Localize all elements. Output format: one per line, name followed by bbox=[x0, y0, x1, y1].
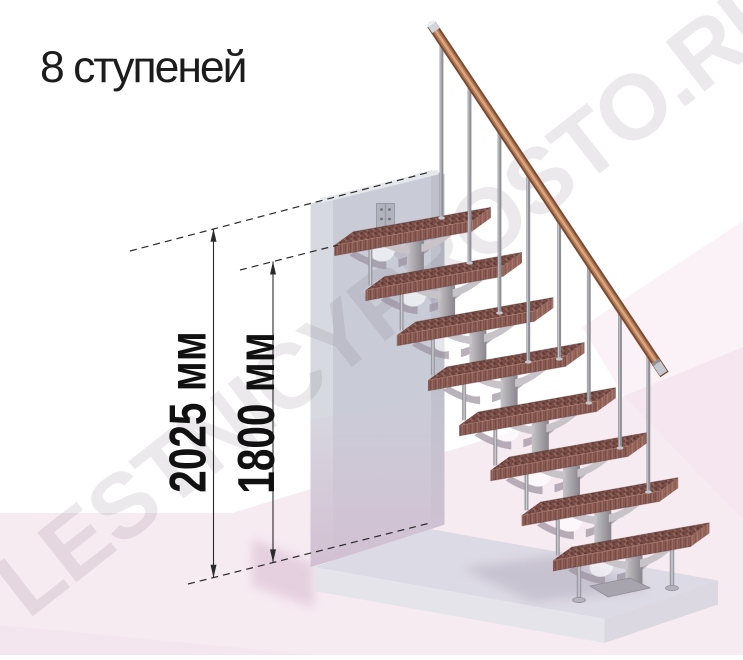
svg-text:1800 мм: 1800 мм bbox=[227, 332, 285, 493]
svg-text:2025 мм: 2025 мм bbox=[159, 331, 217, 492]
svg-text:8 ступеней: 8 ступеней bbox=[40, 43, 246, 92]
